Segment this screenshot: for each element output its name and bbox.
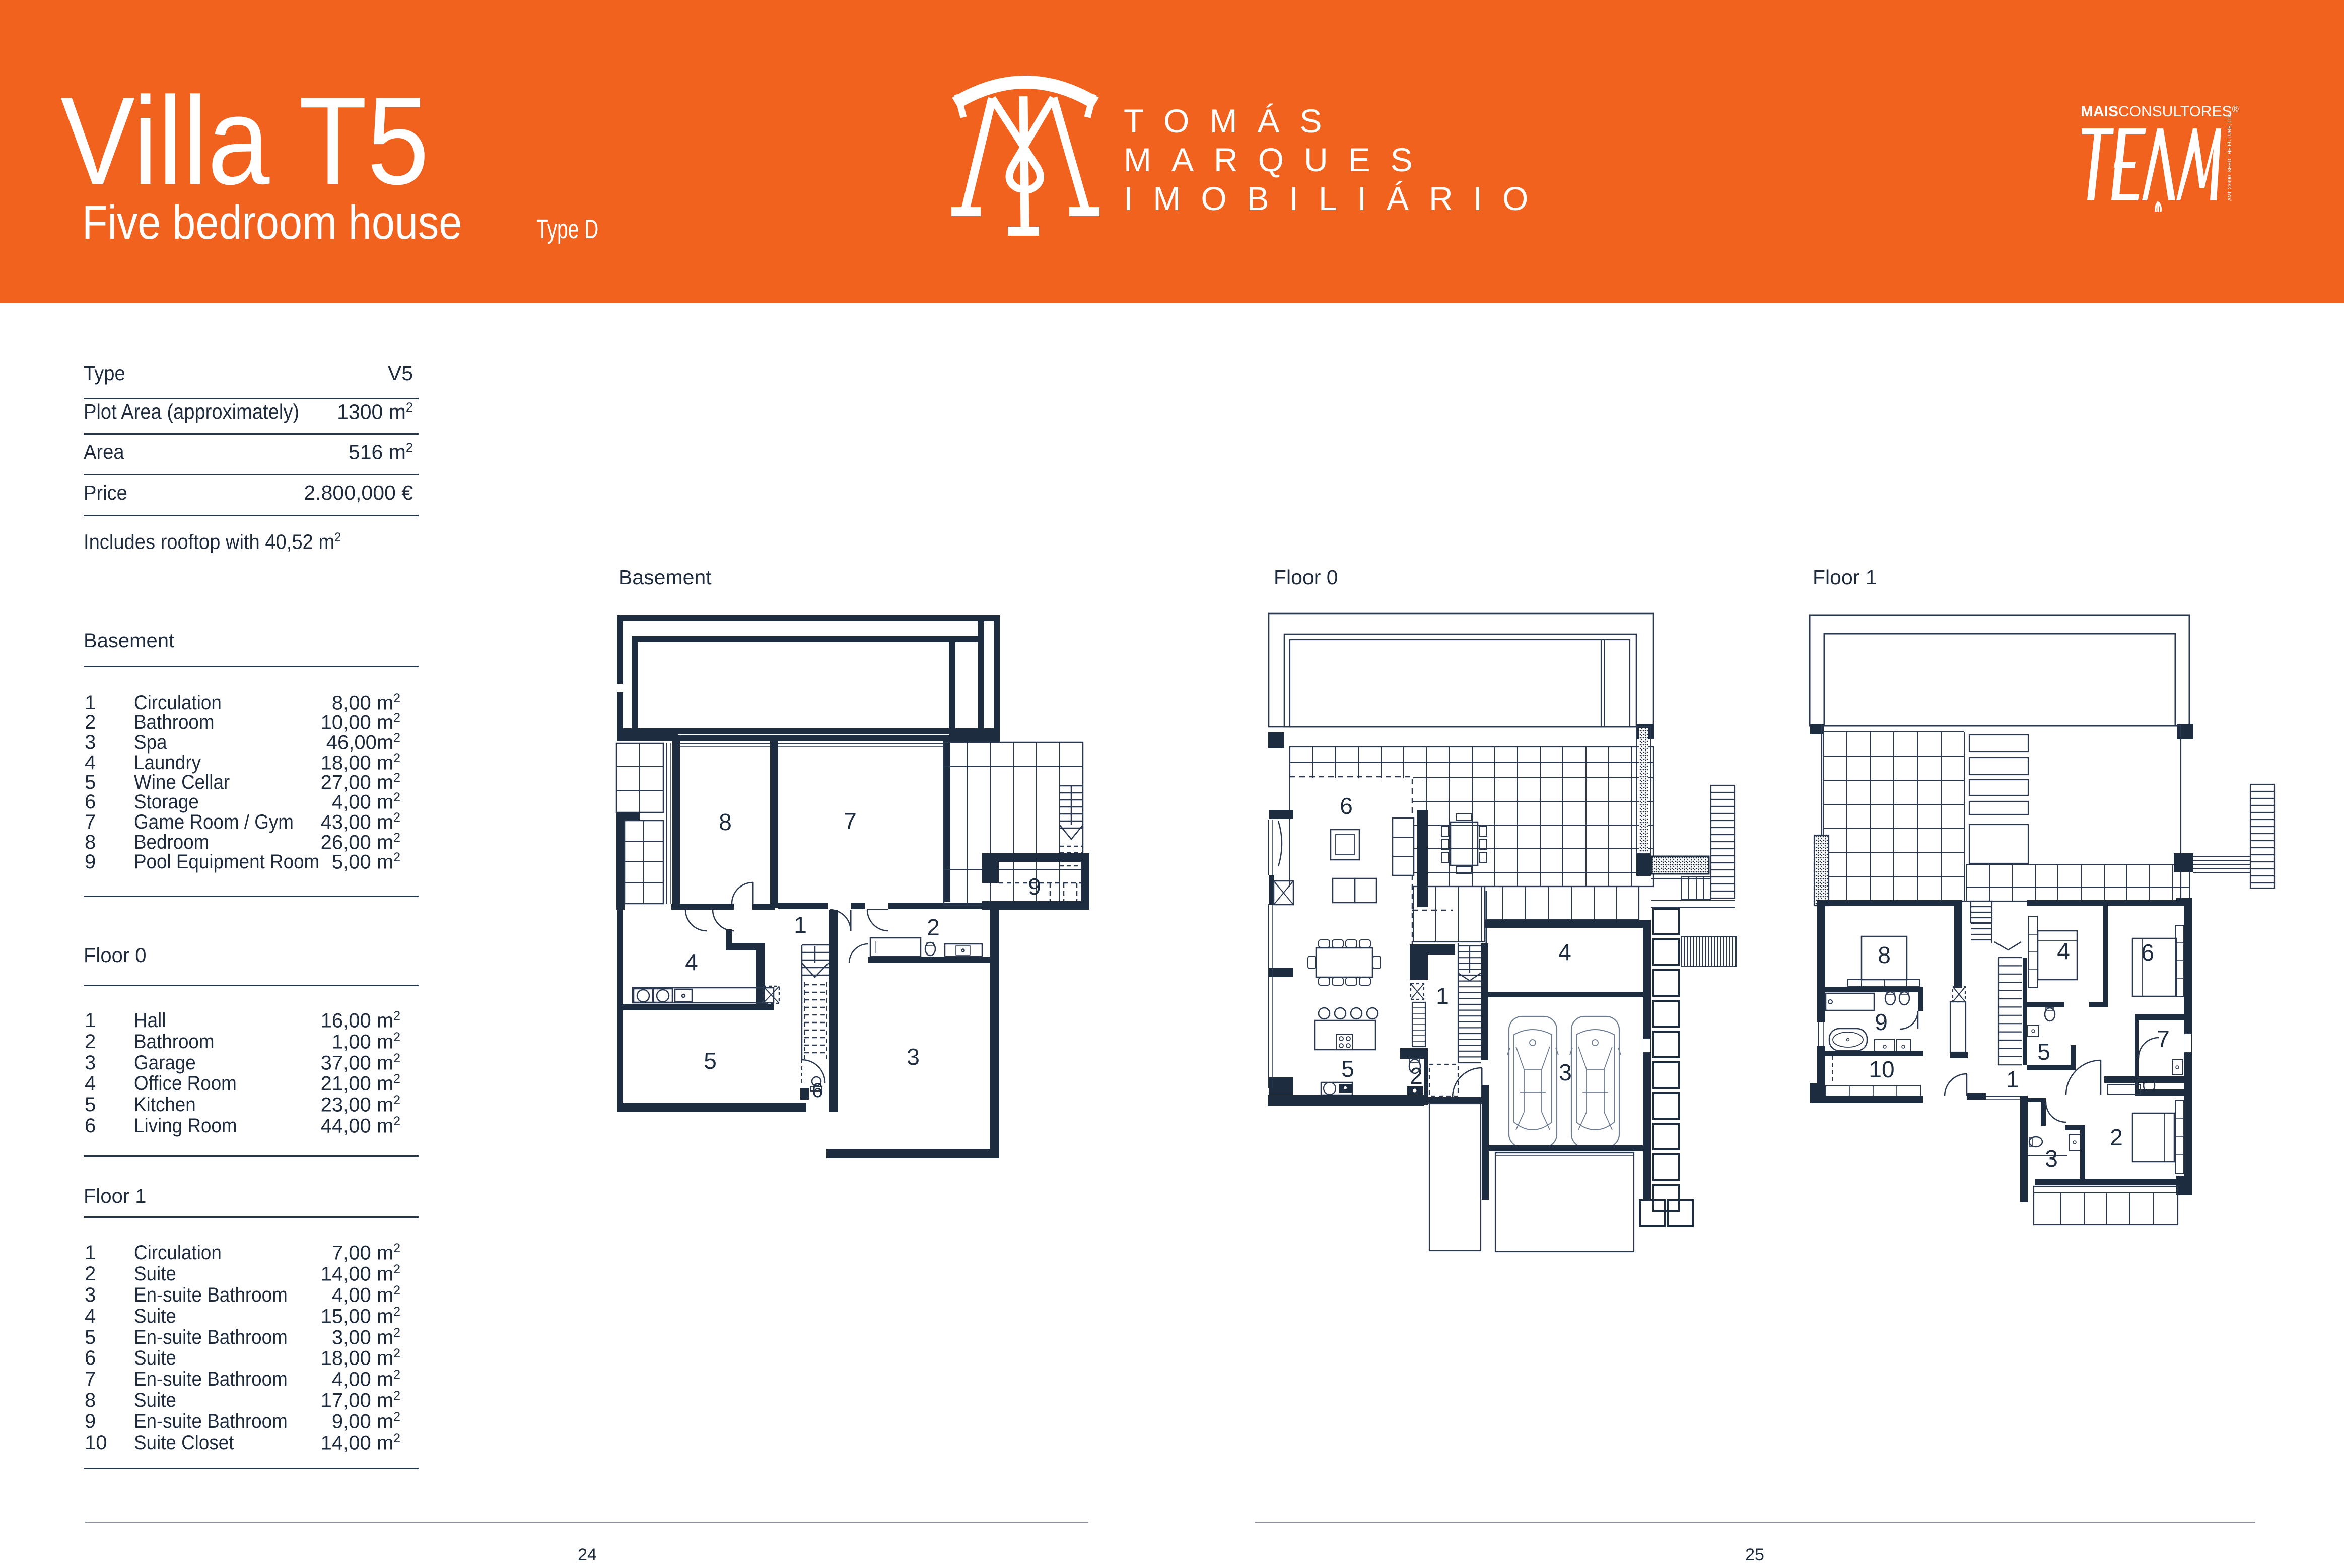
svg-text:4: 4 [2057, 938, 2070, 964]
svg-text:7: 7 [2157, 1026, 2170, 1052]
svg-text:5: 5 [2037, 1039, 2050, 1065]
svg-text:6: 6 [812, 1079, 823, 1102]
svg-text:7: 7 [844, 808, 857, 834]
svg-text:6: 6 [1340, 793, 1353, 819]
svg-text:2: 2 [1410, 1063, 1423, 1089]
svg-text:9: 9 [1875, 1009, 1888, 1035]
svg-text:5: 5 [1341, 1056, 1354, 1082]
svg-text:1: 1 [2006, 1066, 2019, 1093]
svg-text:9: 9 [1028, 873, 1041, 900]
svg-text:1: 1 [794, 912, 807, 938]
svg-text:1: 1 [1436, 983, 1449, 1009]
svg-text:3: 3 [2045, 1145, 2058, 1172]
svg-text:2: 2 [2110, 1124, 2123, 1150]
svg-text:3: 3 [907, 1044, 920, 1070]
svg-text:4: 4 [685, 949, 698, 975]
svg-text:5: 5 [704, 1048, 717, 1074]
svg-text:6: 6 [2141, 939, 2154, 966]
svg-text:10: 10 [1869, 1056, 1894, 1082]
svg-text:4: 4 [1558, 939, 1571, 965]
svg-text:3: 3 [1559, 1059, 1572, 1085]
svg-text:2: 2 [927, 914, 940, 940]
svg-text:8: 8 [1878, 942, 1891, 968]
svg-text:8: 8 [719, 809, 732, 835]
